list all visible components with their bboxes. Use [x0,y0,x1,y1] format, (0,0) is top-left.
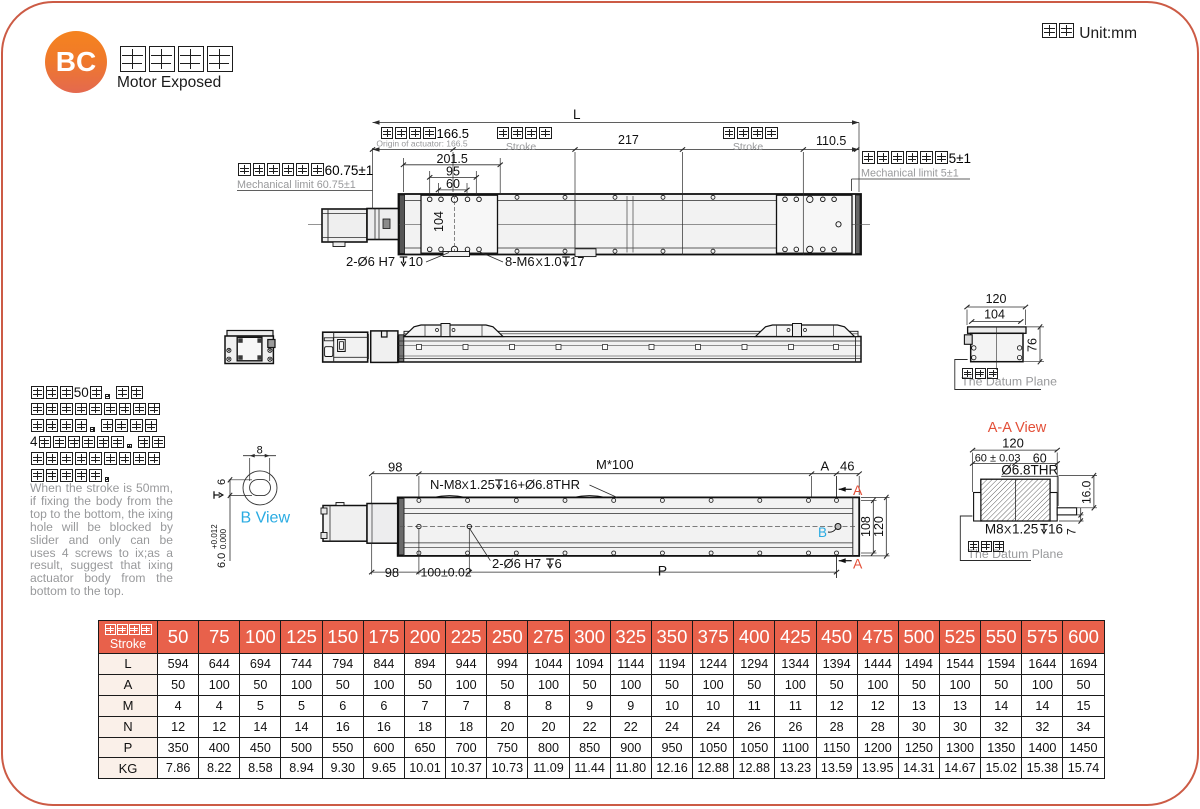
svg-text:76: 76 [1026,338,1040,352]
svg-text:A: A [821,459,830,474]
svg-text:M*100: M*100 [596,457,634,472]
svg-text:100±0.02: 100±0.02 [421,566,472,580]
svg-text:B: B [818,525,827,540]
svg-text:2-Ø6 H7: 2-Ø6 H7 [346,254,395,269]
svg-text:1.0: 1.0 [544,254,562,269]
svg-text:104: 104 [432,211,446,232]
svg-text:X: X [536,257,544,269]
svg-text:X: X [1004,525,1012,537]
svg-text:2-Ø6 H7: 2-Ø6 H7 [492,556,541,571]
svg-text:120: 120 [986,292,1007,306]
svg-text:Mechanical limit 5±1: Mechanical limit 5±1 [861,168,959,180]
svg-text:104: 104 [984,308,1005,322]
svg-text:Ø6.8THR: Ø6.8THR [1001,463,1058,478]
svg-text:16.0: 16.0 [1079,480,1093,504]
svg-text:60: 60 [446,177,460,191]
svg-text:L: L [573,107,581,122]
svg-text:1.25: 1.25 [470,477,495,492]
svg-text:217: 217 [618,133,639,147]
svg-text:X: X [462,480,470,492]
svg-text:6: 6 [555,556,562,571]
svg-text:120: 120 [872,516,886,537]
svg-text:A-A View: A-A View [988,420,1047,436]
svg-text:16: 16 [1048,522,1063,537]
svg-text:10: 10 [409,254,423,269]
svg-text:16+Ø6.8THR: 16+Ø6.8THR [503,477,580,492]
svg-text:B View: B View [241,510,291,527]
svg-text:108: 108 [859,516,873,537]
svg-text:1.25: 1.25 [1012,522,1038,537]
svg-text:+0.012: +0.012 [210,524,219,549]
svg-text:N-M8: N-M8 [430,477,462,492]
svg-text:0.000: 0.000 [219,528,228,549]
svg-text:98: 98 [385,565,399,580]
svg-text:P: P [658,563,667,579]
svg-text:120: 120 [1002,436,1024,451]
svg-text:M8: M8 [985,522,1004,537]
svg-text:6: 6 [216,479,228,485]
svg-text:8: 8 [257,445,263,457]
svg-text:46: 46 [840,459,854,474]
svg-text:6.0: 6.0 [216,553,228,568]
svg-text:17: 17 [570,254,584,269]
svg-text:A: A [853,556,863,572]
svg-text:110.5: 110.5 [816,134,846,148]
svg-text:A: A [853,482,863,498]
svg-text:8-M6: 8-M6 [505,254,535,269]
svg-text:98: 98 [388,460,402,475]
svg-text:7: 7 [1065,528,1079,535]
